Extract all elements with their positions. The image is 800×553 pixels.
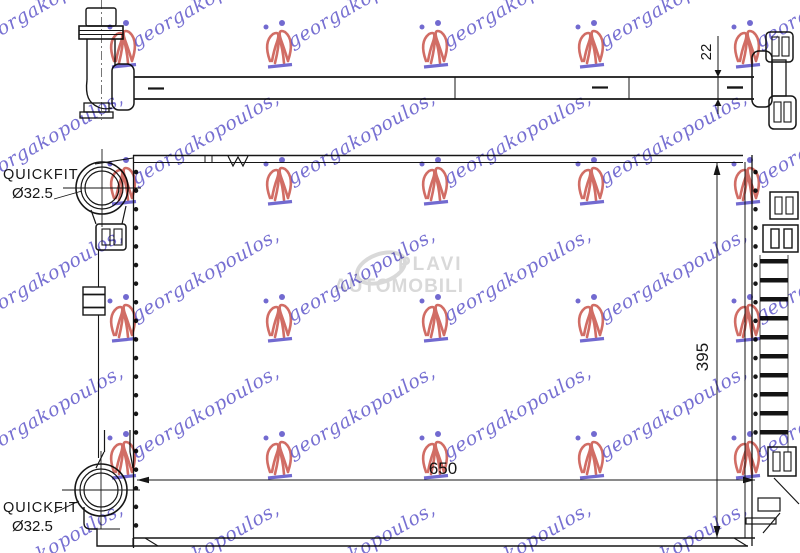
quickfit-label-bottom: QUICKFIT Ø32.5 — [3, 500, 79, 535]
quickfit-label-top: QUICKFIT Ø32.5 — [3, 167, 79, 202]
drawing-canvas: 22 — [0, 0, 800, 553]
dimension-tube-diameter-label: 22 — [698, 44, 715, 61]
quickfit-bottom-line2: Ø32.5 — [12, 518, 53, 535]
top-pipe-assembly — [79, 0, 796, 129]
quickfit-top-line2: Ø32.5 — [12, 185, 53, 202]
leader-lines — [54, 191, 82, 513]
radiator-technical-drawing: PLAVI AUTOMOBILI — [0, 0, 800, 553]
right-tank-details — [746, 192, 799, 533]
right-tank-ribs — [760, 259, 788, 435]
quickfit-bottom-line1: QUICKFIT — [3, 500, 79, 516]
dimension-tube-diameter — [715, 36, 722, 114]
radiator-core — [133, 155, 756, 548]
dimension-core-height — [714, 163, 721, 538]
quickfit-top-line1: QUICKFIT — [3, 167, 79, 183]
dimension-core-height-label: 395 — [693, 343, 712, 371]
quickfit-fitting-bottom — [62, 430, 140, 546]
left-side-bracket — [83, 287, 105, 458]
dimension-core-width-label: 650 — [429, 459, 457, 478]
